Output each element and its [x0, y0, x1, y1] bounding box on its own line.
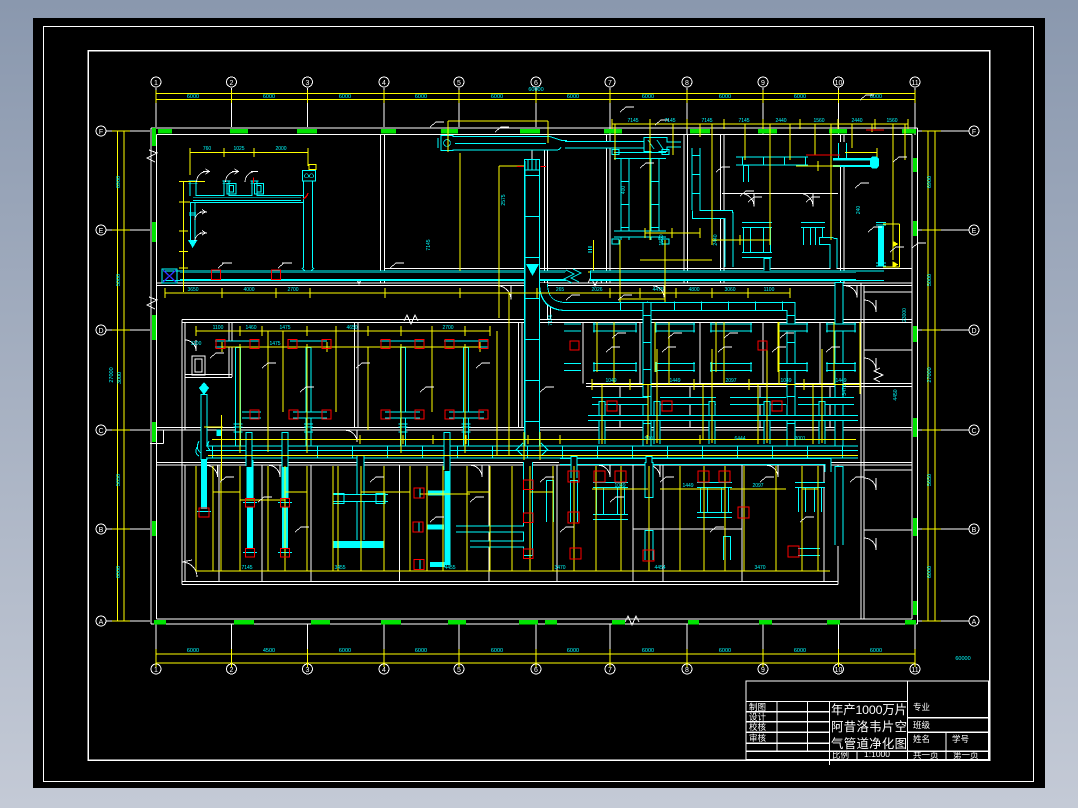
svg-text:学号: 学号 — [952, 734, 969, 744]
svg-text:1100: 1100 — [764, 287, 775, 293]
svg-text:F: F — [99, 129, 103, 136]
svg-text:3650: 3650 — [187, 287, 198, 293]
svg-text:265: 265 — [556, 287, 565, 293]
svg-text:6000: 6000 — [642, 94, 654, 100]
svg-text:6000: 6000 — [415, 648, 427, 654]
svg-text:C: C — [971, 428, 976, 435]
svg-text:6000: 6000 — [491, 94, 503, 100]
svg-text:1475: 1475 — [269, 341, 280, 347]
svg-text:6: 6 — [534, 667, 538, 674]
svg-text:3060: 3060 — [724, 287, 735, 293]
svg-text:6000: 6000 — [339, 94, 351, 100]
svg-text:2440: 2440 — [713, 234, 719, 245]
svg-text:1449: 1449 — [835, 378, 846, 384]
svg-text:6000: 6000 — [415, 94, 427, 100]
svg-text:3: 3 — [306, 80, 310, 87]
svg-text:11: 11 — [911, 80, 918, 87]
svg-text:姓名: 姓名 — [913, 734, 930, 744]
svg-text:6000: 6000 — [794, 94, 806, 100]
svg-text:7: 7 — [608, 667, 612, 674]
svg-text:3455: 3455 — [334, 565, 345, 571]
svg-text:E: E — [972, 228, 977, 235]
svg-text:校核: 校核 — [749, 722, 767, 732]
svg-text:7145: 7145 — [241, 565, 252, 571]
svg-text:4800: 4800 — [688, 287, 699, 293]
svg-text:1475: 1475 — [279, 325, 290, 331]
svg-text:2097: 2097 — [752, 483, 763, 489]
svg-text:8: 8 — [685, 80, 689, 87]
svg-text:6000: 6000 — [263, 94, 275, 100]
svg-text:2026: 2026 — [591, 287, 602, 293]
svg-text:第一页: 第一页 — [953, 750, 979, 760]
svg-text:9: 9 — [761, 667, 765, 674]
svg-text:10: 10 — [835, 667, 843, 674]
svg-text:6000: 6000 — [187, 94, 199, 100]
svg-text:4475: 4475 — [652, 287, 663, 293]
svg-text:7145: 7145 — [627, 118, 638, 124]
svg-text:阿昔洛韦片空: 阿昔洛韦片空 — [831, 719, 907, 734]
svg-text:240: 240 — [856, 206, 862, 215]
svg-text:3470: 3470 — [842, 384, 848, 395]
svg-text:7145: 7145 — [548, 314, 554, 325]
svg-text:1560: 1560 — [813, 118, 824, 124]
svg-text:9: 9 — [761, 80, 765, 87]
svg-text:1560: 1560 — [659, 234, 665, 245]
svg-text:7145: 7145 — [664, 118, 675, 124]
svg-text:1449: 1449 — [669, 378, 680, 384]
svg-text:6000: 6000 — [567, 648, 579, 654]
svg-text:11: 11 — [911, 667, 918, 674]
svg-text:400: 400 — [621, 186, 627, 195]
svg-text:A: A — [972, 619, 977, 626]
svg-text:6000: 6000 — [642, 648, 654, 654]
svg-text:4: 4 — [382, 667, 386, 674]
svg-text:4000: 4000 — [243, 287, 254, 293]
svg-text:2: 2 — [230, 667, 234, 674]
svg-text:8: 8 — [685, 667, 689, 674]
svg-text:1: 1 — [154, 80, 158, 87]
svg-text:6000: 6000 — [116, 566, 122, 578]
svg-text:27000: 27000 — [109, 367, 115, 382]
svg-text:2440: 2440 — [775, 118, 786, 124]
svg-text:1449: 1449 — [682, 483, 693, 489]
svg-text:6000: 6000 — [870, 648, 882, 654]
svg-text:2097: 2097 — [725, 378, 736, 384]
svg-text:5650: 5650 — [116, 474, 122, 486]
svg-text:F: F — [972, 129, 976, 136]
svg-text:1100: 1100 — [191, 341, 202, 347]
svg-text:年产1000万片: 年产1000万片 — [831, 703, 907, 717]
svg-text:A: A — [99, 619, 104, 626]
svg-text:1049: 1049 — [780, 378, 791, 384]
svg-text:60000: 60000 — [528, 87, 543, 93]
svg-text:23000: 23000 — [902, 308, 908, 322]
svg-text:专业: 专业 — [913, 702, 930, 712]
svg-text:2440: 2440 — [851, 118, 862, 124]
svg-text:2000: 2000 — [275, 146, 286, 152]
svg-text:1460: 1460 — [245, 325, 256, 331]
svg-text:2001: 2001 — [794, 436, 805, 442]
svg-text:5000: 5000 — [116, 274, 122, 286]
svg-text:60000: 60000 — [955, 656, 970, 662]
svg-text:4454: 4454 — [654, 565, 665, 571]
svg-text:6: 6 — [534, 80, 538, 87]
svg-text:制图: 制图 — [749, 702, 766, 712]
svg-text:6000: 6000 — [927, 566, 933, 578]
svg-text:比例: 比例 — [832, 750, 849, 760]
svg-text:6900: 6900 — [927, 176, 933, 188]
svg-text:1049: 1049 — [605, 378, 616, 384]
svg-text:4450: 4450 — [893, 389, 899, 400]
svg-text:3470: 3470 — [754, 565, 765, 571]
svg-text:1:1000: 1:1000 — [864, 749, 890, 759]
svg-text:D: D — [98, 328, 103, 335]
svg-text:3: 3 — [306, 667, 310, 674]
svg-text:3470: 3470 — [554, 565, 565, 571]
svg-text:B: B — [99, 527, 104, 534]
svg-text:6000: 6000 — [719, 648, 731, 654]
svg-text:6000: 6000 — [339, 648, 351, 654]
svg-text:5: 5 — [457, 80, 461, 87]
svg-text:1025: 1025 — [233, 146, 244, 152]
svg-text:1100: 1100 — [213, 325, 224, 331]
svg-text:班级: 班级 — [913, 720, 931, 730]
svg-text:2700: 2700 — [442, 325, 453, 331]
svg-text:10: 10 — [835, 80, 843, 87]
svg-text:共一页: 共一页 — [913, 750, 939, 760]
svg-text:7145: 7145 — [738, 118, 749, 124]
svg-text:7: 7 — [608, 80, 612, 87]
svg-text:E: E — [99, 228, 104, 235]
svg-text:5: 5 — [457, 667, 461, 674]
svg-text:2700: 2700 — [287, 287, 298, 293]
svg-text:4: 4 — [382, 80, 386, 87]
svg-text:1: 1 — [154, 667, 158, 674]
svg-text:27000: 27000 — [927, 367, 933, 382]
svg-text:6900: 6900 — [116, 176, 122, 188]
svg-text:4650: 4650 — [346, 325, 357, 331]
svg-text:4500: 4500 — [263, 648, 275, 654]
svg-text:1560: 1560 — [886, 118, 897, 124]
svg-text:D: D — [971, 328, 976, 335]
svg-text:6000: 6000 — [567, 94, 579, 100]
svg-text:6000: 6000 — [491, 648, 503, 654]
svg-text:B: B — [972, 527, 977, 534]
svg-text:审核: 审核 — [749, 733, 767, 743]
svg-text:6000: 6000 — [794, 648, 806, 654]
svg-text:6444: 6444 — [734, 436, 745, 442]
svg-text:760: 760 — [203, 146, 212, 152]
svg-text:6000: 6000 — [719, 94, 731, 100]
svg-text:设计: 设计 — [749, 712, 767, 722]
svg-text:2575: 2575 — [501, 194, 507, 205]
svg-text:6000: 6000 — [187, 648, 199, 654]
svg-text:4455: 4455 — [444, 565, 455, 571]
svg-text:7145: 7145 — [426, 239, 432, 250]
svg-text:5001: 5001 — [644, 436, 655, 442]
svg-text:5650: 5650 — [927, 474, 933, 486]
svg-text:3000: 3000 — [117, 372, 123, 384]
svg-text:C: C — [98, 428, 103, 435]
svg-text:7145: 7145 — [701, 118, 712, 124]
svg-text:5000: 5000 — [927, 274, 933, 286]
svg-text:1049: 1049 — [614, 483, 625, 489]
svg-text:2: 2 — [230, 80, 234, 87]
